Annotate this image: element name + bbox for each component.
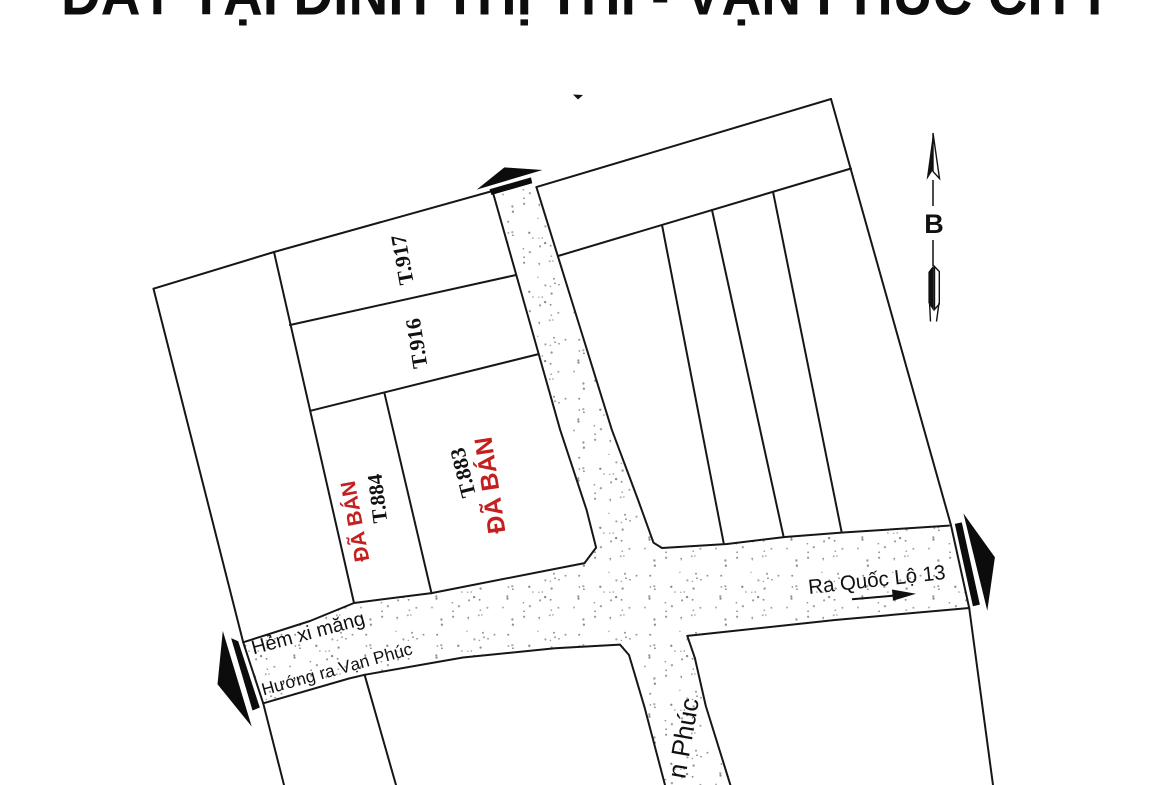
svg-text:ĐẤT TẠI ĐÌNH THỊ THI - VẠN PHÚ: ĐẤT TẠI ĐÌNH THỊ THI - VẠN PHÚC CITY xyxy=(61,0,1113,28)
svg-text:B: B xyxy=(924,209,944,239)
